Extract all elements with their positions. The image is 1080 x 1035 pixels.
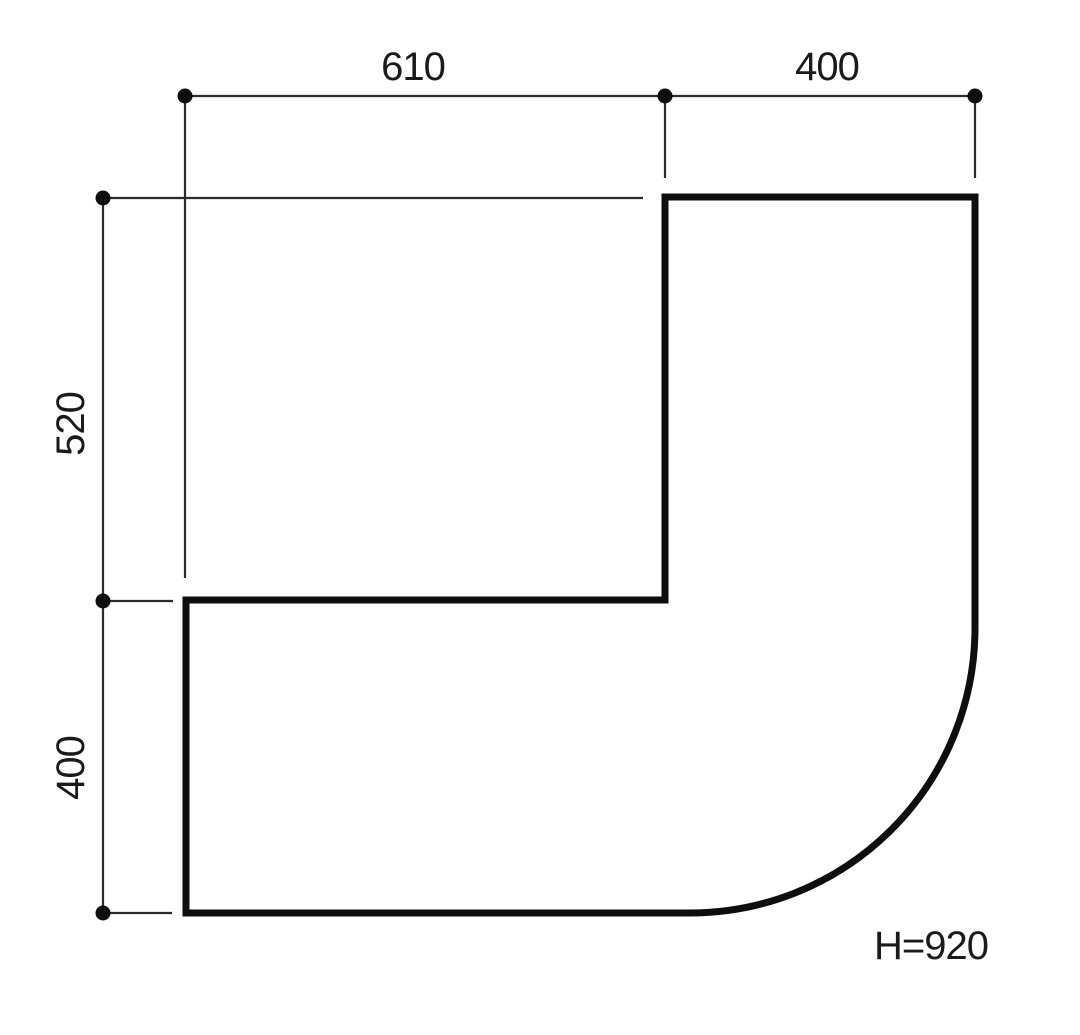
worktop-outline [186,197,975,913]
height-annotation-h920: H=920 [874,924,988,968]
drawing-canvas: 610 400 520 400 H=920 [0,0,1080,1035]
left-dimension-line [96,191,644,921]
dim-dot [658,89,673,104]
dim-dot [96,906,111,921]
technical-drawing: 610 400 520 400 H=920 [0,0,1080,1035]
dim-label-left-lower-400: 400 [49,736,93,800]
dim-label-top-left-610: 610 [381,45,445,89]
dim-label-left-upper-520: 520 [49,392,93,456]
dim-dot [96,594,111,609]
top-dimension-line [178,89,983,579]
dim-dot [968,89,983,104]
dim-dot [96,191,111,206]
dim-label-top-right-400: 400 [795,45,859,89]
dim-dot [178,89,193,104]
